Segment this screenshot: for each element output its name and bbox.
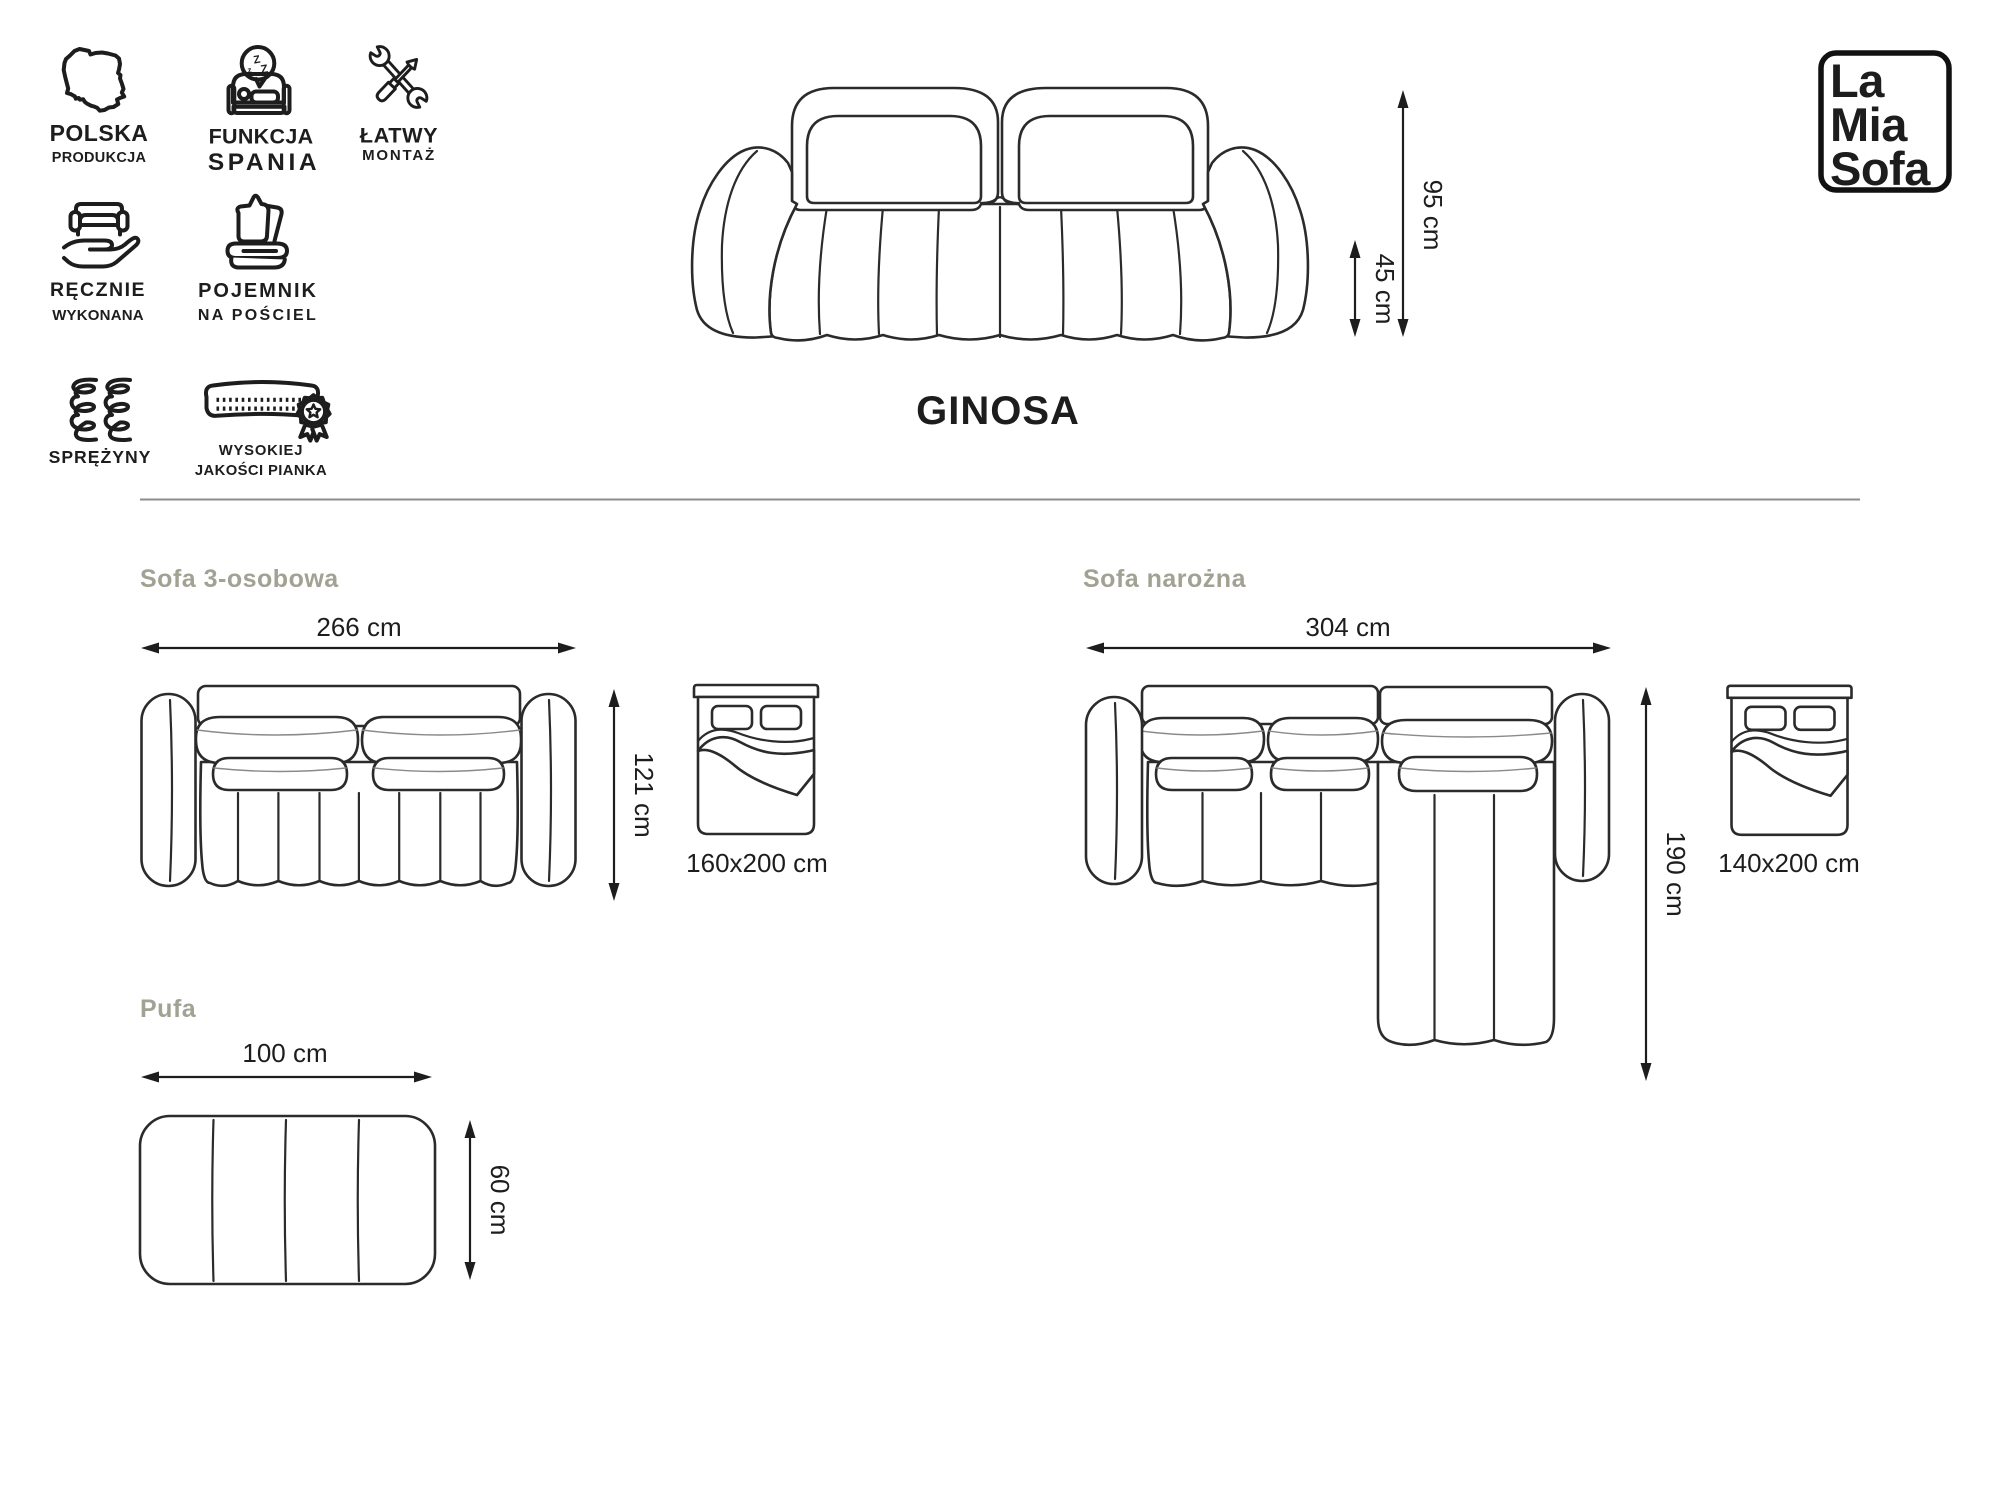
svg-text:ŁATWY: ŁATWY	[360, 123, 438, 148]
svg-text:100 cm: 100 cm	[242, 1038, 327, 1068]
svg-text:SPANIA: SPANIA	[208, 149, 320, 176]
svg-text:POJEMNIK: POJEMNIK	[198, 280, 318, 302]
svg-text:Sofa 3-osobowa: Sofa 3-osobowa	[140, 565, 339, 593]
svg-text:160x200 cm: 160x200 cm	[686, 848, 828, 878]
svg-text:JAKOŚCI PIANKA: JAKOŚCI PIANKA	[195, 461, 327, 479]
svg-text:Sofa: Sofa	[1830, 142, 1931, 195]
svg-text:266 cm: 266 cm	[316, 612, 401, 642]
svg-text:POLSKA: POLSKA	[50, 120, 149, 146]
svg-text:FUNKCJA: FUNKCJA	[209, 125, 314, 149]
svg-text:Pufa: Pufa	[140, 995, 197, 1023]
svg-text:95 cm: 95 cm	[1418, 180, 1448, 251]
svg-text:RĘCZNIE: RĘCZNIE	[50, 279, 146, 301]
svg-text:Sofa narożna: Sofa narożna	[1083, 565, 1247, 593]
svg-text:190 cm: 190 cm	[1661, 831, 1691, 916]
svg-text:NA POŚCIEL: NA POŚCIEL	[198, 305, 318, 324]
svg-text:PRODUKCJA: PRODUKCJA	[52, 150, 147, 166]
svg-text:MONTAŻ: MONTAŻ	[362, 147, 436, 164]
svg-text:45 cm: 45 cm	[1370, 254, 1400, 325]
svg-text:SPRĘŻYNY: SPRĘŻYNY	[49, 447, 152, 467]
svg-text:121 cm: 121 cm	[629, 752, 659, 837]
svg-text:60 cm: 60 cm	[485, 1165, 515, 1236]
svg-text:140x200 cm: 140x200 cm	[1718, 848, 1860, 878]
svg-text:GINOSA: GINOSA	[916, 389, 1080, 433]
svg-text:WYKONANA: WYKONANA	[52, 307, 144, 324]
svg-text:304 cm: 304 cm	[1305, 612, 1390, 642]
svg-text:WYSOKIEJ: WYSOKIEJ	[219, 443, 304, 459]
